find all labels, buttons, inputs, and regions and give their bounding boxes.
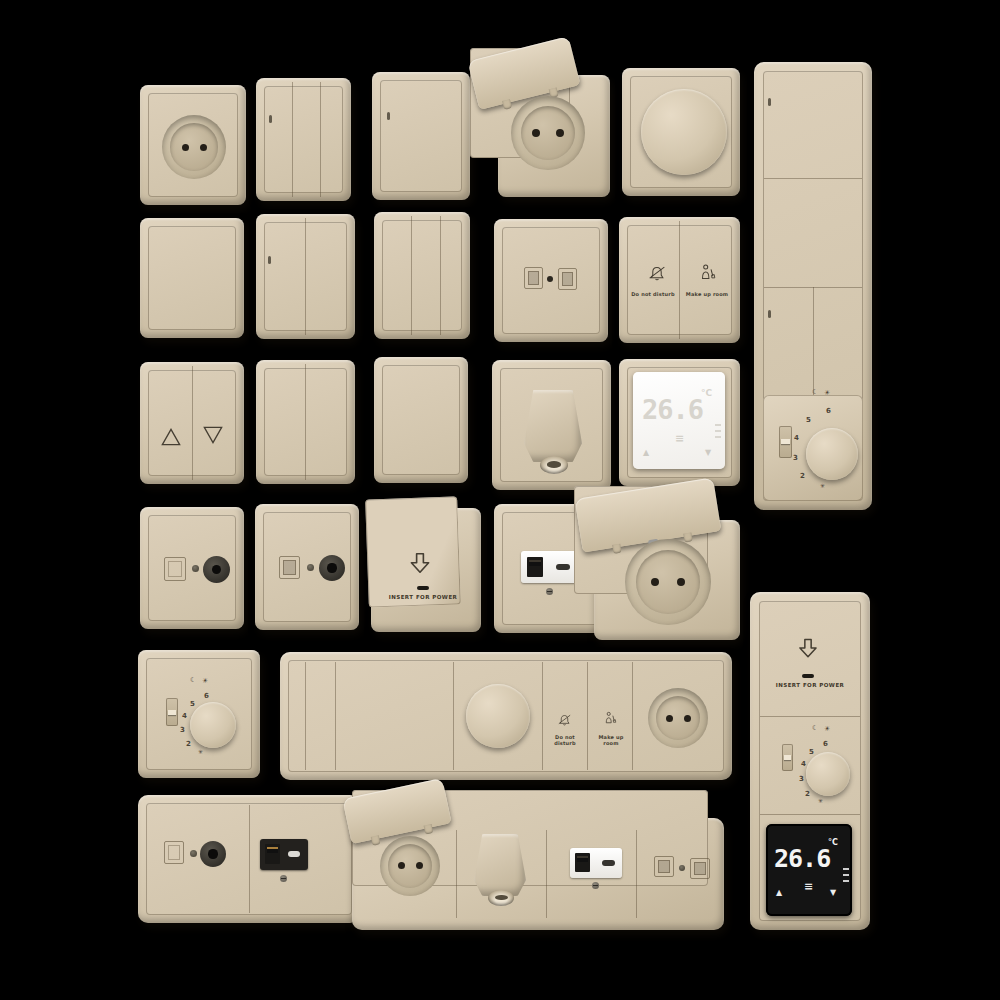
- menu-icon: ≡: [804, 880, 813, 893]
- status-dot: [547, 276, 553, 282]
- usb-insert: [521, 551, 578, 583]
- coax-connector: [319, 555, 345, 581]
- insert-card-icon: [405, 550, 435, 580]
- dimmer-knob: [641, 89, 727, 175]
- status-dot: [307, 564, 314, 571]
- cable-spout: [524, 390, 582, 462]
- card-slot: [417, 586, 429, 590]
- frost-symbol: ✳: [818, 797, 823, 804]
- data-port: [654, 856, 674, 877]
- make-up-room-icon: [697, 262, 719, 284]
- temp-up-button: ▲: [776, 888, 782, 897]
- temperature-unit: °C: [828, 838, 838, 847]
- data-port: [524, 267, 543, 289]
- make-up-room-icon: [602, 710, 619, 727]
- mode-slider: [782, 744, 793, 771]
- coax-connector: [200, 841, 226, 867]
- cable-opening: [488, 890, 514, 906]
- socket-recess: [380, 836, 440, 896]
- horizontal-combo-panel: Do not disturb Make up room: [280, 652, 732, 780]
- socket-recess: [162, 115, 226, 179]
- pin-hole: [651, 578, 659, 586]
- horizontal-socket-panel: [352, 790, 736, 932]
- usb-insert: [260, 839, 308, 870]
- thermostat-dial-knob: [806, 752, 850, 796]
- day-mode-symbol: ☀: [824, 725, 830, 733]
- single-rocker-switch: [372, 72, 470, 200]
- status-dot: [679, 865, 685, 871]
- cable-outlet: [492, 360, 611, 490]
- blank-port: [164, 841, 184, 864]
- night-mode-symbol: ☾: [190, 676, 196, 684]
- pin-hole: [532, 129, 540, 137]
- usb-c-port: [288, 851, 300, 857]
- indicator-light: [387, 112, 390, 120]
- night-mode-symbol: ☾: [812, 724, 818, 732]
- mode-slider: [166, 698, 178, 726]
- triple-rocker-switch: [256, 78, 351, 201]
- lidded-socket-open: [470, 48, 615, 200]
- analog-dial-thermostat: ☾ ☀ 6 5 4 3 2 ✳: [138, 650, 260, 778]
- double-rocker-switch: [256, 214, 355, 339]
- do-not-disturb-icon: [646, 263, 668, 285]
- dimmer-knob: [466, 684, 530, 748]
- frost-symbol: ✳: [198, 748, 203, 755]
- cable-spout: [474, 834, 526, 896]
- digital-thermostat-white: 26.6 °C ≡ ▲ ▼: [619, 359, 740, 486]
- mode-slider: [779, 426, 792, 458]
- status-dot: [190, 850, 197, 857]
- screw: [546, 588, 553, 595]
- data-port: [690, 858, 710, 879]
- blinds-switch: [140, 362, 244, 484]
- coax-connector: [203, 556, 230, 583]
- screw: [592, 882, 599, 889]
- pin-hole: [416, 862, 423, 869]
- rotary-dimmer: [622, 68, 740, 196]
- usb-a-port: [265, 844, 280, 864]
- insert-card-icon: [794, 636, 822, 664]
- cable-opening: [540, 456, 568, 474]
- wall-fixtures-render: ☾ ☀ 6 5 4 3 2 ✳ Do not disturb Make up r…: [0, 0, 1000, 1000]
- status-dot: [192, 565, 199, 572]
- temperature-reading: 26.6: [774, 844, 830, 873]
- dual-data-socket: [494, 219, 608, 342]
- pin-hole: [666, 715, 673, 722]
- round-socket: [140, 85, 246, 205]
- blinds-up-icon: [158, 424, 184, 450]
- pin-hole: [677, 578, 685, 586]
- coax-socket-female: [140, 507, 244, 629]
- blank-rocker: [374, 357, 468, 483]
- coax-usb-combo-panel: [138, 795, 360, 923]
- socket-recess: [625, 539, 711, 625]
- temp-up-button: ▲: [643, 448, 649, 457]
- pin-hole: [398, 862, 405, 869]
- do-not-disturb-icon: [556, 712, 573, 729]
- temperature-reading: 26.6: [642, 394, 703, 425]
- indicator-light: [268, 256, 271, 264]
- pin-hole: [556, 129, 564, 137]
- blank-port: [164, 557, 186, 581]
- usb-c-port: [602, 860, 615, 866]
- indicator-light: [269, 115, 272, 123]
- key-card-power-holder: INSERT FOR POWER: [367, 498, 484, 636]
- thermostat-screen: 26.6 °C ≡ ▲ ▼: [766, 824, 852, 916]
- dnd-label: Do not disturb: [546, 734, 584, 747]
- day-mode-symbol: ☀: [202, 677, 208, 685]
- usb-c-port: [556, 564, 570, 570]
- insert-for-power-label: INSERT FOR POWER: [758, 682, 862, 688]
- day-mode-symbol: ☀: [824, 389, 830, 397]
- temperature-unit: °C: [701, 388, 712, 398]
- menu-icon: ≡: [675, 432, 684, 445]
- mur-label: Make up room: [592, 734, 630, 747]
- usb-a-port: [527, 557, 543, 577]
- usb-insert: [570, 848, 622, 878]
- pin-hole: [200, 144, 207, 151]
- socket-recess: [648, 688, 708, 748]
- dnd-label: Do not disturb: [631, 291, 675, 297]
- pin-hole: [684, 715, 691, 722]
- mur-label: Make up room: [685, 291, 729, 297]
- temp-down-button: ▼: [705, 448, 711, 457]
- vertical-card-thermostat-panel: INSERT FOR POWER ☾ ☀ 6 5 4 3 2 ✳ 26.6 °C…: [750, 592, 870, 930]
- pin-hole: [182, 144, 189, 151]
- temp-down-button: ▼: [830, 888, 836, 897]
- usb-a-port: [575, 853, 590, 872]
- blank-rocker: [140, 218, 244, 338]
- night-mode-symbol: ☾: [812, 388, 818, 396]
- frost-symbol: ✳: [820, 482, 825, 489]
- blinds-down-icon: [200, 422, 226, 448]
- thermostat-screen: 26.6 °C ≡ ▲ ▼: [633, 372, 725, 469]
- thermostat-dial-knob: [190, 702, 236, 748]
- thermostat-dial-knob: [806, 428, 858, 480]
- lidded-schuko-socket-open: [574, 486, 742, 642]
- screw: [280, 875, 287, 882]
- double-rocker-switch: [256, 360, 355, 484]
- coax-socket-male: [255, 504, 359, 630]
- vertical-multiswitch-thermostat-panel: ☾ ☀ 6 5 4 3 2 ✳: [754, 62, 872, 510]
- card-slot: [802, 674, 814, 678]
- dnd-mur-switch: Do not disturb Make up room: [619, 217, 740, 343]
- insert-for-power-label: INSERT FOR POWER: [373, 594, 473, 600]
- data-port: [279, 556, 300, 579]
- indicator-light: [768, 98, 771, 106]
- triple-rocker-switch: [374, 212, 470, 339]
- indicator-light: [768, 310, 771, 318]
- socket-recess: [511, 96, 585, 170]
- data-port: [558, 268, 577, 290]
